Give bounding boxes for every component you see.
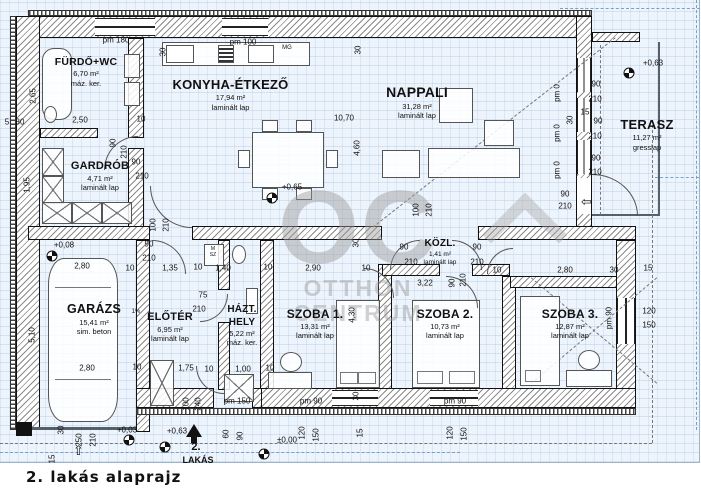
room-nappali: NAPPALI 31,28 m² laminált lap: [352, 84, 482, 120]
dim-label: pm 90: [300, 397, 322, 406]
room-furdo-wc: FÜRDŐ+WC 6,70 m² máz. ker.: [40, 56, 132, 88]
room-floor: laminált lap: [352, 111, 482, 120]
wall: [592, 32, 640, 42]
room-area: 6,70 m²: [40, 69, 132, 78]
dim-label: 90: [592, 154, 601, 163]
dim-label: 1,40: [215, 264, 231, 273]
dim-label: 10: [194, 263, 203, 272]
dim-label: 1,95: [23, 177, 32, 193]
dim-label: 10: [133, 363, 142, 372]
room-floor: laminált lap: [126, 334, 214, 343]
room-area: 11,27 m²: [598, 133, 696, 142]
pillow: [340, 372, 358, 384]
dim-label: 210: [558, 202, 571, 211]
wardrobe: [72, 202, 102, 224]
section-line: [560, 8, 700, 9]
wall: [502, 276, 516, 390]
dim-label: 10,70: [334, 114, 354, 123]
wall: [40, 128, 98, 138]
dim-label: pm 90: [444, 397, 466, 406]
dim-label: 5,10: [28, 327, 37, 343]
dim-label: 10: [266, 364, 275, 373]
dim-label: ±0,00: [277, 436, 297, 445]
toilet: [44, 106, 57, 123]
dim-label: 30: [159, 48, 168, 57]
car-windshield: [55, 287, 111, 291]
dim-label: 30: [566, 116, 575, 125]
wall: [16, 16, 40, 430]
terrace-door-arrow-icon: ⇦: [581, 195, 592, 208]
dim-label: 60: [222, 430, 231, 439]
dim-label: +0,03: [117, 426, 137, 435]
dim-label: 210: [135, 172, 148, 181]
dim-label: 15: [356, 429, 365, 438]
dim-label: 210: [470, 258, 483, 267]
dim-label: 10: [493, 266, 502, 275]
level-marker-icon: [47, 251, 58, 262]
dim-label: 10: [362, 264, 371, 273]
coffee-table: [484, 120, 514, 146]
room-name: KONYHA-ÉTKEZŐ: [158, 77, 303, 93]
dim-label: 250: [75, 433, 84, 446]
watermark-otthon: OTTHON: [278, 276, 438, 301]
stove-icon: [218, 45, 234, 63]
wardrobe: [102, 202, 132, 224]
dim-label: 100: [182, 397, 191, 410]
dim-label: 10: [126, 264, 135, 273]
dim-label: 120: [642, 307, 655, 316]
dim-label: 210: [89, 433, 98, 446]
room-eloter: ELŐTÉR 6,95 m² laminált lap: [126, 311, 214, 344]
chair: [262, 120, 278, 132]
kitchen-sink: [166, 45, 194, 63]
window: [95, 18, 155, 36]
room-floor: laminált lap: [263, 331, 367, 340]
room-name: KÖZL.: [408, 238, 472, 251]
chair: [296, 120, 312, 132]
dim-label: 210: [120, 145, 129, 158]
dim-label: 1,75: [178, 364, 194, 373]
dim-label: +0,08: [54, 241, 74, 250]
dim-label: pm 0: [553, 124, 562, 142]
section-line: [655, 177, 699, 178]
dim-label: 210: [162, 218, 171, 231]
dim-label: MG: [282, 45, 292, 51]
desk-chair: [578, 350, 600, 370]
car-rear-window: [55, 379, 111, 383]
dim-label: 2,80: [557, 266, 573, 275]
hall-cabinet: [150, 360, 174, 406]
boundary-line: [0, 452, 460, 453]
dim-label: 100: [412, 203, 421, 216]
room-area: 17,94 m²: [158, 93, 303, 102]
dim-label: 240: [194, 397, 203, 410]
window: [222, 18, 268, 36]
room-area: 6,95 m²: [126, 325, 214, 334]
dim-label: 90: [594, 117, 603, 126]
dim-label: 30: [354, 46, 363, 55]
dim-label: 90: [473, 243, 482, 252]
pillow: [449, 371, 475, 384]
dim-label: 90: [236, 432, 245, 441]
sofa: [428, 148, 520, 178]
dim-label: 30: [610, 266, 619, 275]
desk-chair: [280, 352, 302, 372]
garage-door-jamb: [16, 422, 32, 436]
dim-label: 2,80: [79, 364, 95, 373]
dim-label: 30: [352, 239, 361, 248]
dim-label: 2,80: [74, 262, 90, 271]
room-area: 13,31 m²: [263, 322, 367, 331]
dim-label: pm 180: [103, 36, 130, 45]
wall-insulation: [260, 408, 636, 415]
dim-label: 120: [298, 426, 307, 439]
dim-label: 150: [312, 428, 321, 441]
dim-label: 150: [642, 321, 655, 330]
dim-label: 90: [592, 80, 601, 89]
level-marker-icon: [267, 193, 278, 204]
car: [48, 258, 118, 422]
room-name: SZOBA 2.: [393, 307, 497, 322]
dim-label: +0,65: [282, 183, 302, 192]
dim-label: 30: [57, 426, 66, 435]
dim-label: 10: [205, 365, 214, 374]
pillow: [358, 372, 376, 384]
room-floor: laminált lap: [518, 331, 622, 340]
dim-label: 210: [588, 95, 601, 104]
dim-label: 4,30: [348, 307, 357, 323]
room-floor: laminált lap: [393, 331, 497, 340]
dim-label: +0,63: [167, 427, 187, 436]
dim-label: 10: [137, 115, 146, 124]
dim-label: 120: [446, 426, 455, 439]
dim-label: pm 0: [553, 161, 562, 179]
dim-label: 210: [425, 203, 434, 216]
level-marker-icon: [259, 449, 270, 460]
pillow: [417, 371, 443, 384]
plan-canvas: OC OTTHON CENTRUM FÜRDŐ+WC 6,70 m² máz. …: [0, 0, 700, 463]
dim-label: 100: [149, 218, 158, 231]
dim-label: 5: [5, 118, 9, 127]
toilet: [232, 245, 246, 264]
level-marker-icon: [624, 68, 635, 79]
chair: [238, 150, 250, 168]
dim-label: 90: [132, 158, 141, 167]
dim-label: 4,60: [353, 140, 362, 156]
dim-label: 15: [644, 264, 653, 273]
dim-label: pm 0: [553, 84, 562, 102]
dim-label: pm 100: [230, 38, 257, 47]
unit-label: LAKÁS: [176, 455, 220, 465]
dim-label: 90: [109, 139, 118, 148]
dim-label: +0,63: [643, 59, 663, 68]
dim-label: 210: [588, 168, 601, 177]
desk: [566, 370, 612, 387]
pillow: [525, 370, 541, 382]
dim-label: 90: [448, 279, 457, 288]
roof-overhang-line: [0, 443, 652, 444]
dim-label: 1,35: [162, 264, 178, 273]
dim-label: pm 150: [224, 397, 251, 406]
section-line: [696, 0, 697, 430]
room-konyha: KONYHA-ÉTKEZŐ 17,94 m² laminált lap: [158, 77, 303, 112]
dim-label: 90: [145, 240, 154, 249]
dim-label: pm 90: [605, 307, 614, 329]
chair: [326, 150, 338, 168]
room-name: TERASZ: [598, 117, 696, 133]
dim-label: 1%: [132, 309, 141, 315]
dim-label: 2,65: [29, 88, 38, 104]
level-marker-icon: [124, 435, 135, 446]
armchair: [382, 150, 420, 178]
dim-label: 210: [588, 132, 601, 141]
cooktop: [248, 45, 274, 63]
room-floor: gresslap: [598, 143, 696, 152]
dim-label: 1,00: [235, 365, 251, 374]
room-szoba2: SZOBA 2. 10,73 m² laminált lap: [393, 307, 497, 341]
desk: [268, 372, 312, 389]
dim-label: 2,50: [72, 116, 88, 125]
level-marker-icon: [160, 442, 171, 453]
dim-label: 210: [192, 305, 205, 314]
door-arc: [592, 174, 638, 216]
wall: [28, 226, 150, 240]
floor-plan-page: OC OTTHON CENTRUM FÜRDŐ+WC 6,70 m² máz. …: [0, 0, 701, 500]
room-floor: máz. ker.: [40, 79, 132, 88]
room-name: FÜRDŐ+WC: [40, 56, 132, 69]
dim-label: 10: [264, 263, 273, 272]
room-floor: laminált lap: [158, 103, 303, 112]
dim-label: 2,90: [305, 264, 321, 273]
dim-label: 3,22: [417, 279, 433, 288]
dining-table: [252, 132, 324, 188]
dim-label: 210: [404, 258, 417, 267]
room-floor: laminált lap: [50, 183, 150, 192]
wardrobe: [42, 202, 72, 224]
dim-label: 75: [199, 291, 208, 300]
dim-label: 30: [352, 392, 361, 401]
dim-label: 210: [142, 254, 155, 263]
dim-label: 90: [400, 243, 409, 252]
dim-label: 30: [16, 118, 25, 127]
dim-label: SZ: [210, 252, 216, 258]
room-area: 31,28 m²: [352, 102, 482, 111]
dim-label: 15: [581, 108, 590, 117]
room-terasz: TERASZ 11,27 m² gresslap: [598, 117, 696, 152]
room-area: 10,73 m²: [393, 322, 497, 331]
window: [577, 58, 591, 92]
dim-label: 210: [459, 273, 468, 286]
room-name: NAPPALI: [352, 84, 482, 102]
dim-label: 150: [460, 427, 469, 440]
drawing-title: 2. lakás alaprajz: [26, 468, 181, 486]
dim-label: 90: [561, 190, 570, 199]
dim-label: 15: [48, 455, 57, 464]
entrance-arrow-stem: [191, 436, 197, 443]
